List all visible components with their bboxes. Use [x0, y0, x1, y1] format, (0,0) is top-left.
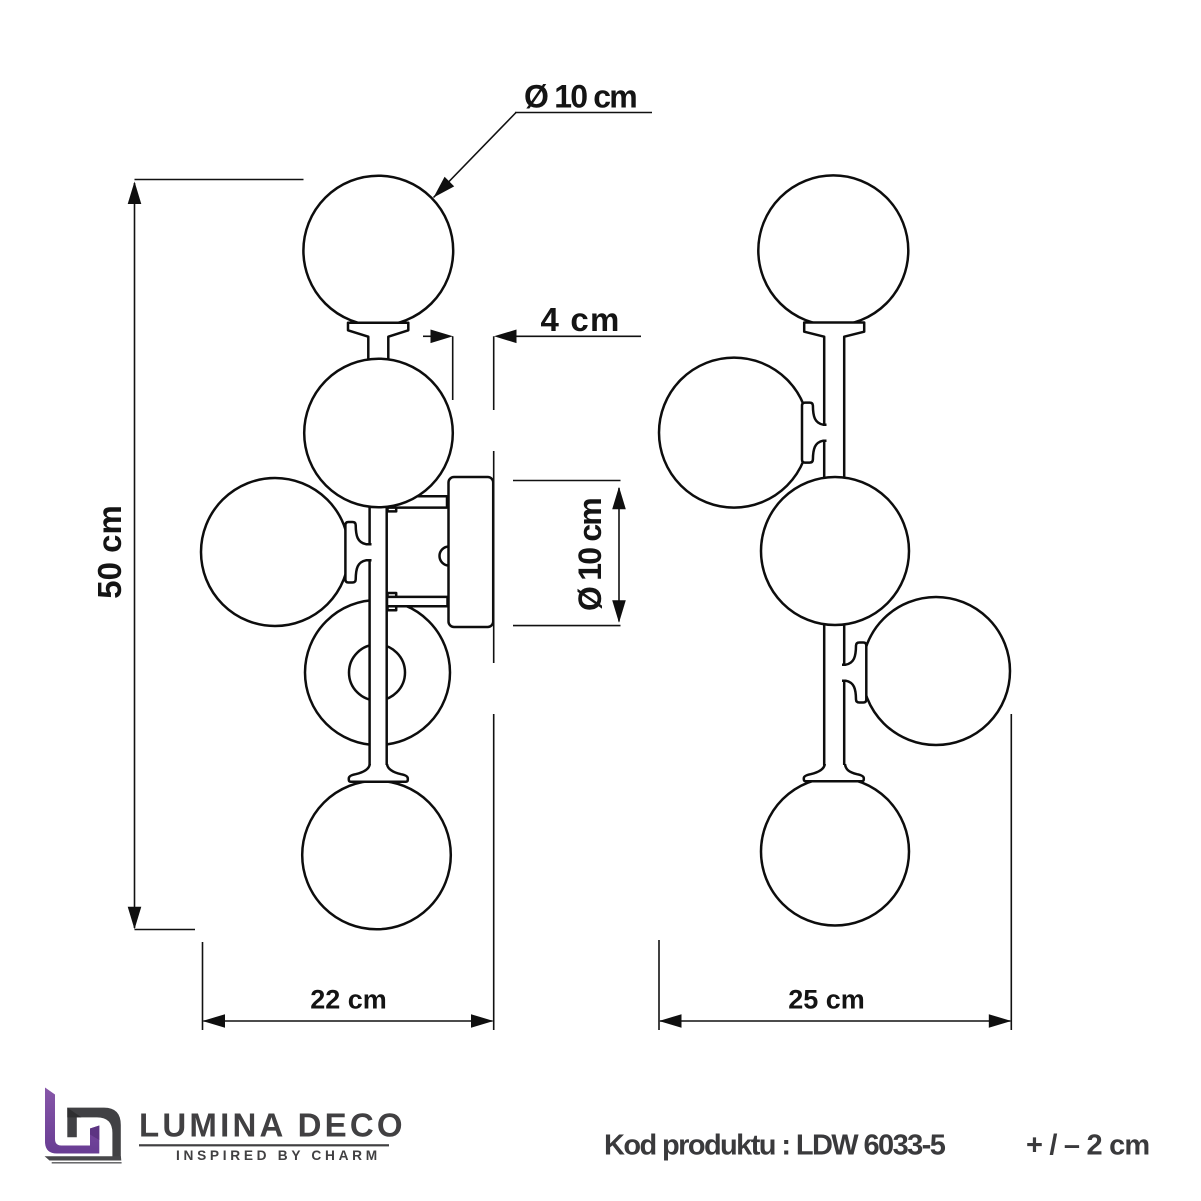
svg-text:INSPIRED BY CHARM: INSPIRED BY CHARM	[176, 1148, 381, 1163]
svg-text:4 cm: 4 cm	[540, 301, 620, 338]
svg-text:Ø 10 cm: Ø 10 cm	[524, 79, 636, 115]
svg-text:+ / – 2 cm: + / – 2 cm	[1026, 1130, 1149, 1162]
svg-text:25 cm: 25 cm	[788, 985, 865, 1015]
svg-text:22 cm: 22 cm	[310, 985, 387, 1015]
svg-text:Kod produktu : LDW 6033-5: Kod produktu : LDW 6033-5	[604, 1130, 946, 1162]
svg-text:50 cm: 50 cm	[91, 505, 128, 599]
svg-text:Ø 10 cm: Ø 10 cm	[572, 499, 608, 611]
svg-text:LUMINA DECO: LUMINA DECO	[139, 1107, 406, 1144]
